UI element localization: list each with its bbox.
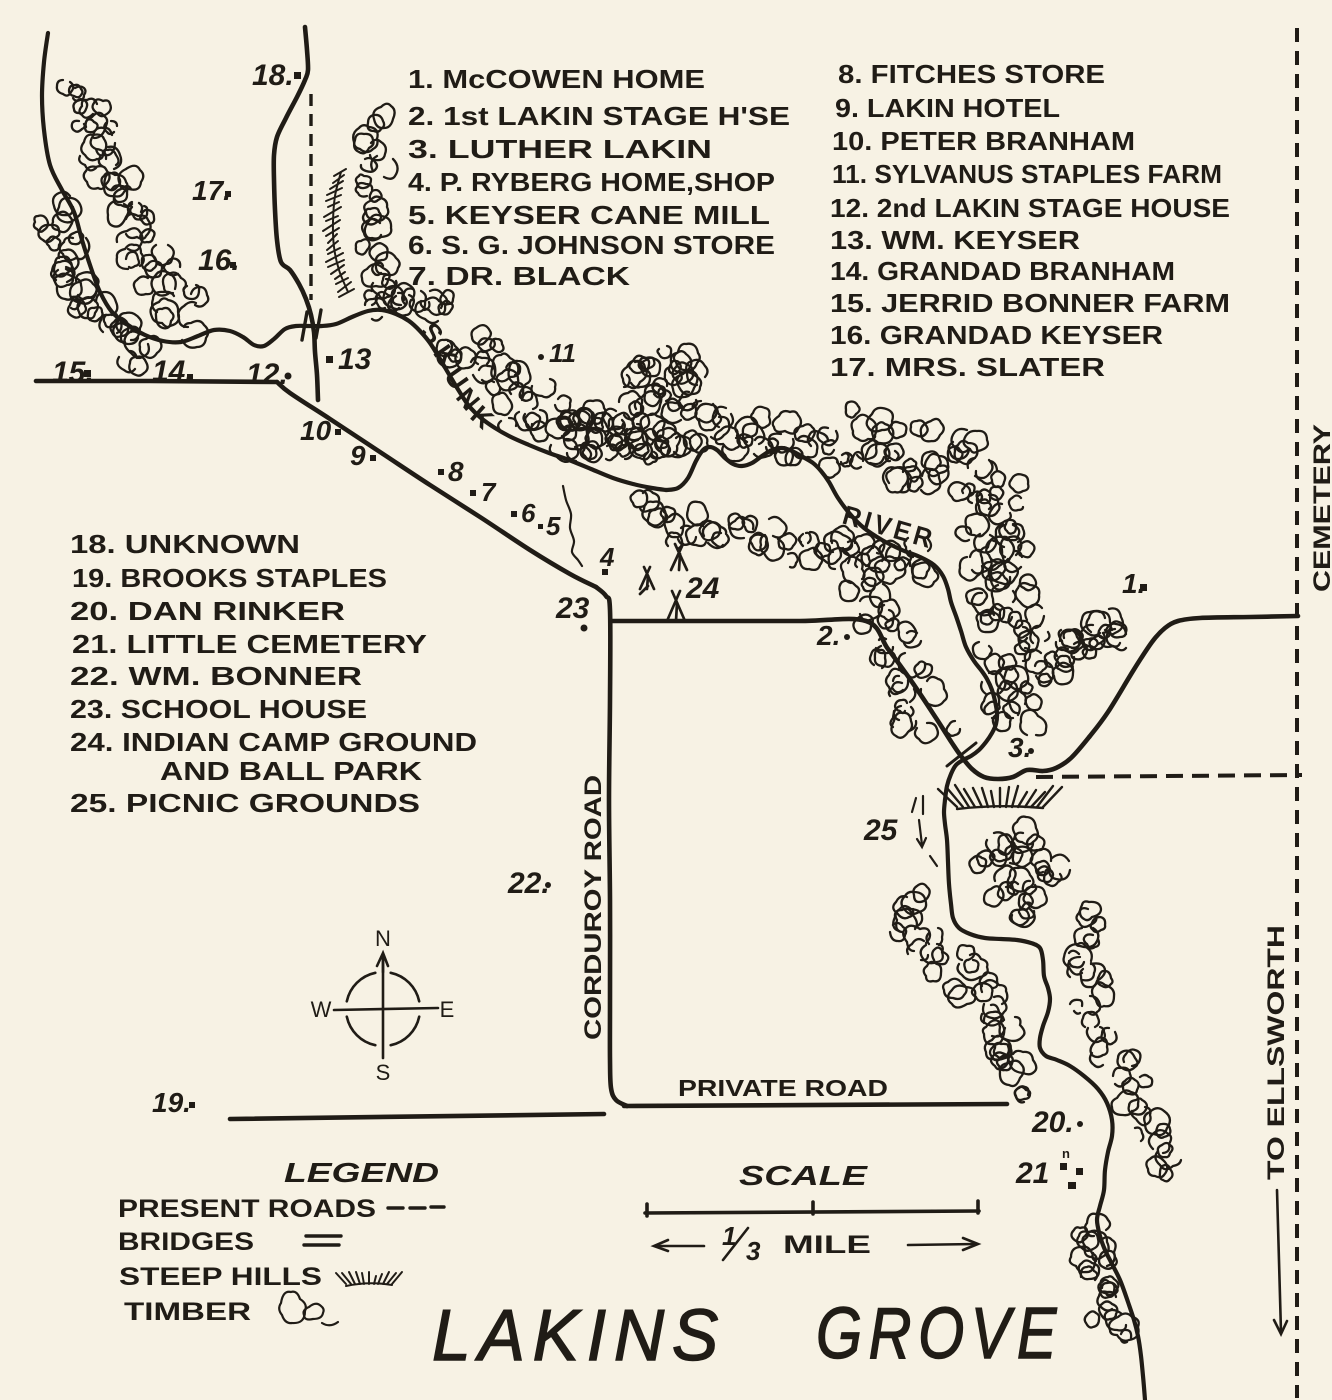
svg-text:24. INDIAN CAMP GROUND: 24. INDIAN CAMP GROUND: [70, 727, 477, 757]
svg-text:7. DR. BLACK: 7. DR. BLACK: [408, 261, 630, 291]
svg-text:18. UNKNOWN: 18. UNKNOWN: [70, 529, 300, 559]
svg-text:3.: 3.: [1008, 732, 1031, 763]
svg-text:23: 23: [555, 592, 590, 625]
svg-text:MILE: MILE: [783, 1231, 871, 1259]
svg-text:SCALE: SCALE: [739, 1160, 869, 1191]
svg-text:n: n: [1062, 1146, 1070, 1161]
svg-text:1.: 1.: [1122, 568, 1145, 599]
svg-text:10. PETER BRANHAM: 10. PETER BRANHAM: [832, 126, 1135, 156]
svg-text:20. DAN RINKER: 20. DAN RINKER: [70, 596, 345, 626]
svg-text:10: 10: [300, 415, 332, 446]
svg-text:19. BROOKS STAPLES: 19. BROOKS STAPLES: [72, 563, 387, 593]
svg-text:6: 6: [521, 498, 536, 528]
svg-text:TO ELLSWORTH: TO ELLSWORTH: [1263, 925, 1290, 1180]
svg-text:7: 7: [481, 477, 497, 507]
svg-text:13: 13: [338, 343, 372, 376]
svg-text:23. SCHOOL HOUSE: 23. SCHOOL HOUSE: [70, 694, 367, 724]
svg-text:8. FITCHES STORE: 8. FITCHES STORE: [838, 59, 1105, 89]
svg-text:TIMBER: TIMBER: [124, 1298, 251, 1326]
svg-text:21. LITTLE CEMETERY: 21. LITTLE CEMETERY: [72, 629, 427, 659]
svg-text:4: 4: [599, 542, 615, 572]
svg-text:16. GRANDAD KEYSER: 16. GRANDAD KEYSER: [830, 320, 1163, 350]
svg-text:9. LAKIN HOTEL: 9. LAKIN HOTEL: [835, 93, 1060, 123]
svg-text:5: 5: [546, 511, 561, 541]
svg-text:12.: 12.: [246, 358, 288, 391]
svg-text:22.: 22.: [507, 867, 550, 900]
svg-text:12. 2nd LAKIN STAGE HOUSE: 12. 2nd LAKIN STAGE HOUSE: [830, 193, 1230, 223]
svg-text:GROVE: GROVE: [816, 1294, 1063, 1374]
svg-text:PRIVATE ROAD: PRIVATE ROAD: [678, 1075, 888, 1101]
svg-text:5. KEYSER CANE MILL: 5. KEYSER CANE MILL: [408, 200, 770, 230]
svg-text:19.: 19.: [152, 1087, 191, 1118]
svg-text:PRESENT ROADS: PRESENT ROADS: [118, 1195, 376, 1223]
svg-text:15. JERRID BONNER FARM: 15. JERRID BONNER FARM: [830, 288, 1230, 318]
svg-text:CEMETERY: CEMETERY: [1309, 424, 1332, 592]
svg-text:LEGEND: LEGEND: [284, 1157, 439, 1188]
svg-text:22. WM. BONNER: 22. WM. BONNER: [70, 661, 362, 691]
svg-text:W: W: [311, 997, 332, 1022]
svg-text:11. SYLVANUS STAPLES FARM: 11. SYLVANUS STAPLES FARM: [832, 159, 1222, 189]
svg-text:17. MRS. SLATER: 17. MRS. SLATER: [830, 352, 1105, 382]
svg-text:S: S: [376, 1060, 391, 1085]
svg-text:13. WM. KEYSER: 13. WM. KEYSER: [830, 225, 1080, 255]
svg-text:3: 3: [746, 1236, 761, 1266]
svg-text:AND BALL PARK: AND BALL PARK: [160, 756, 422, 786]
svg-text:14.: 14.: [152, 355, 194, 388]
svg-text:E: E: [440, 997, 455, 1022]
svg-text:6. S. G. JOHNSON STORE: 6. S. G. JOHNSON STORE: [408, 230, 775, 260]
svg-text:LAKINS: LAKINS: [432, 1296, 726, 1376]
svg-text:CORDUROY ROAD: CORDUROY ROAD: [580, 775, 607, 1040]
svg-text:16.: 16.: [198, 244, 240, 277]
svg-text:17.: 17.: [192, 175, 231, 206]
svg-text:STEEP HILLS: STEEP HILLS: [119, 1263, 322, 1291]
svg-text:3. LUTHER LAKIN: 3. LUTHER LAKIN: [408, 134, 712, 164]
svg-text:25: 25: [863, 814, 899, 847]
svg-text:9: 9: [350, 440, 366, 471]
svg-text:1. McCOWEN HOME: 1. McCOWEN HOME: [408, 64, 705, 94]
svg-text:20.: 20.: [1031, 1106, 1074, 1139]
svg-text:BRIDGES: BRIDGES: [118, 1228, 254, 1256]
svg-text:11: 11: [549, 338, 576, 368]
svg-text:14. GRANDAD BRANHAM: 14. GRANDAD BRANHAM: [830, 256, 1175, 286]
svg-text:N: N: [375, 926, 391, 951]
svg-text:25. PICNIC GROUNDS: 25. PICNIC GROUNDS: [70, 788, 420, 818]
svg-text:8: 8: [448, 456, 464, 487]
svg-text:2. 1st LAKIN STAGE H'SE: 2. 1st LAKIN STAGE H'SE: [408, 101, 790, 131]
svg-text:21: 21: [1015, 1157, 1049, 1190]
svg-text:4. P. RYBERG HOME,SHOP: 4. P. RYBERG HOME,SHOP: [408, 167, 775, 197]
svg-text:18.: 18.: [252, 59, 294, 92]
svg-text:2.: 2.: [816, 620, 840, 651]
svg-text:24: 24: [685, 572, 720, 605]
